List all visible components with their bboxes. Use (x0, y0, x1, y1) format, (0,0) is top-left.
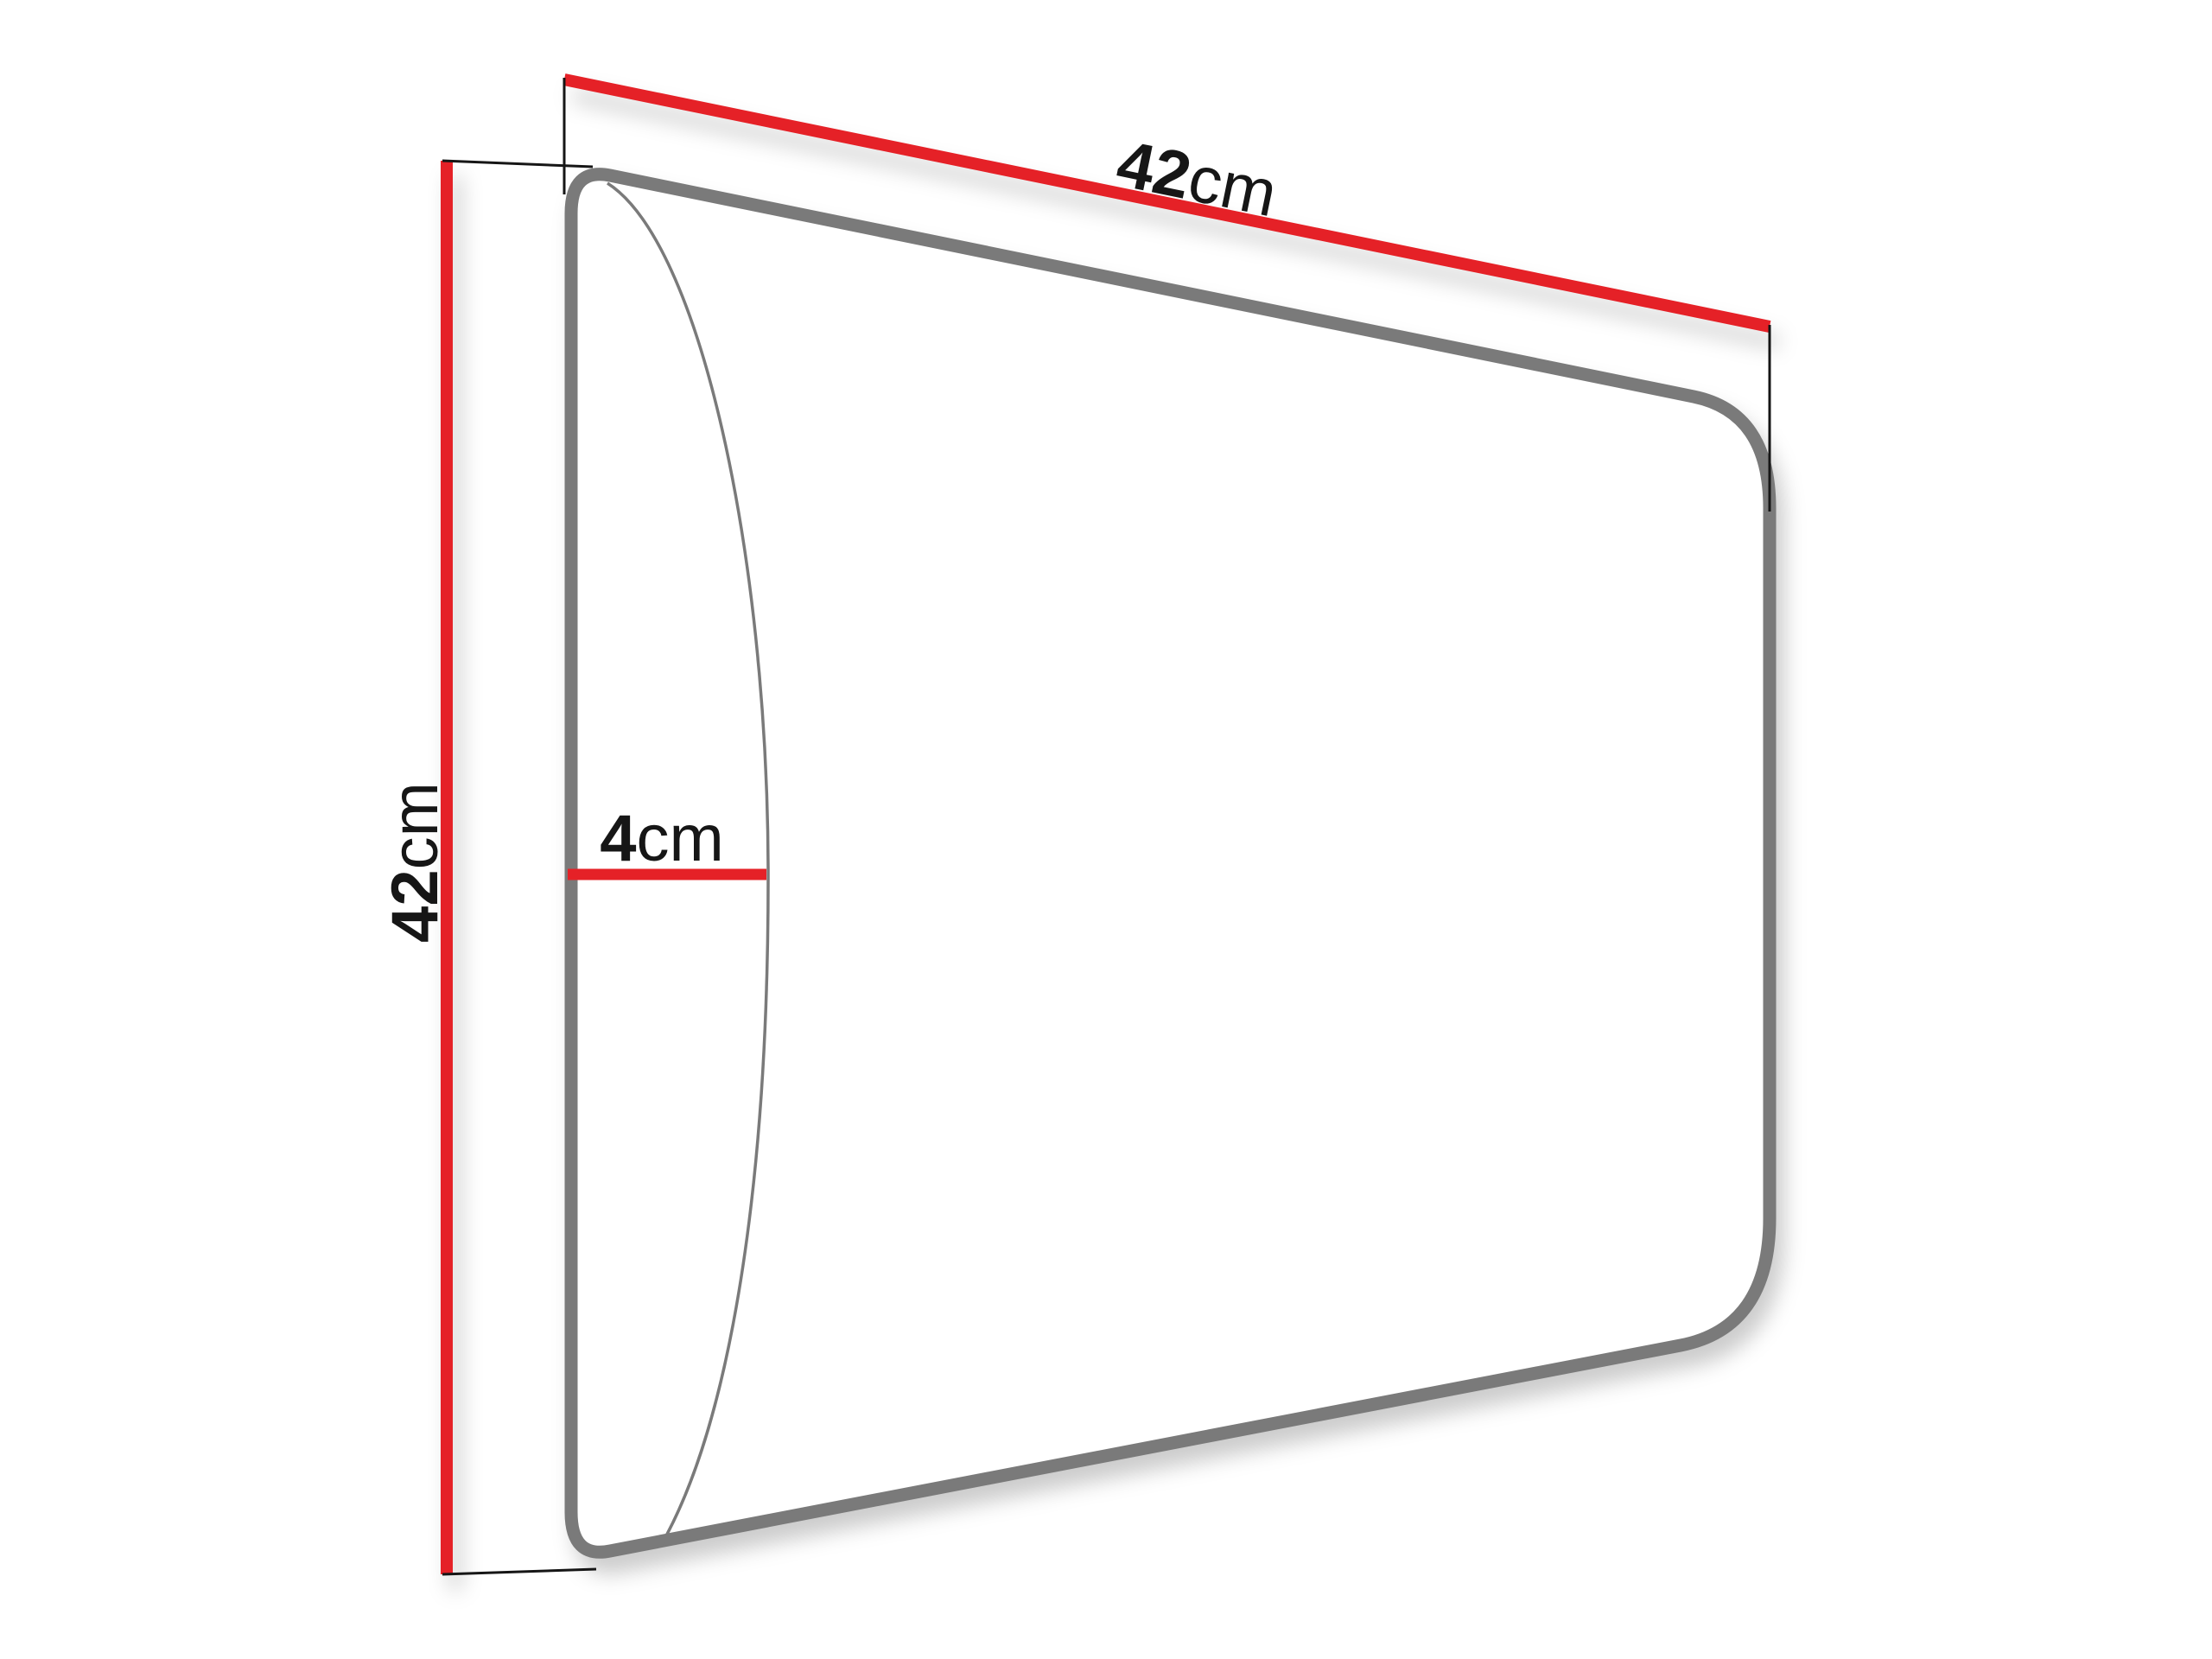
panel-outline (571, 175, 1770, 1553)
width-dimension-label: 42cm (1111, 127, 1283, 232)
extension-line-left-top-horizontal (442, 161, 593, 167)
height-value: 42 (378, 869, 452, 943)
width-unit: cm (1182, 142, 1282, 232)
depth-dimension-label: 4cm (600, 802, 724, 875)
extension-line-left-bottom-horizontal (442, 1569, 596, 1574)
depth-unit: cm (636, 802, 723, 875)
diagram-canvas: 42cm 42cm 4cm (0, 0, 2212, 1659)
height-dimension-label: 42cm (378, 782, 452, 943)
dimension-diagram: 42cm 42cm 4cm (0, 0, 2212, 1659)
height-unit: cm (378, 782, 452, 869)
depth-value: 4 (600, 802, 636, 875)
